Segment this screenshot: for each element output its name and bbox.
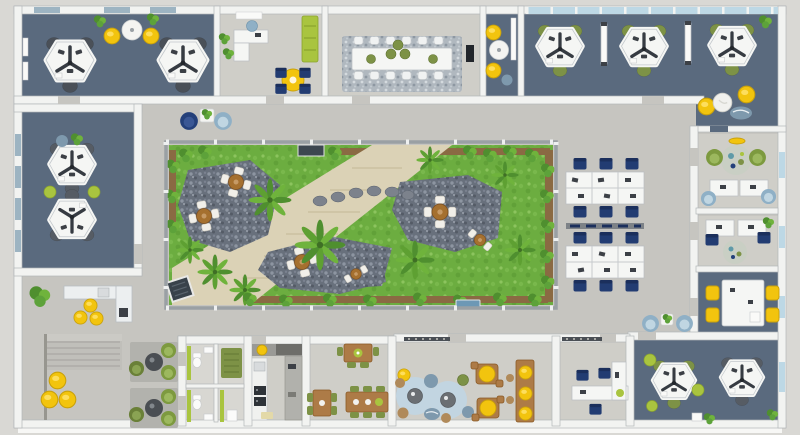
oven bbox=[254, 397, 266, 406]
navy-chair bbox=[576, 370, 588, 381]
sink bbox=[98, 288, 109, 297]
lime-pouf bbox=[44, 186, 56, 198]
yellow-stool bbox=[74, 311, 87, 324]
divider-screen bbox=[685, 23, 691, 63]
lounge-rug-2 bbox=[129, 388, 178, 428]
lime-pouf bbox=[644, 354, 656, 366]
building-bottom-face bbox=[18, 428, 782, 433]
yellow-bean-bag bbox=[59, 391, 76, 408]
plant bbox=[616, 389, 624, 397]
shelf bbox=[511, 18, 516, 60]
conference-room bbox=[342, 36, 474, 92]
yellow-lounge-chair bbox=[143, 28, 159, 44]
blue-armchair bbox=[676, 315, 693, 332]
navy-chair bbox=[589, 404, 601, 415]
blue-chair bbox=[761, 189, 776, 204]
fruit-bowl bbox=[257, 345, 267, 355]
navy-chair bbox=[275, 68, 286, 78]
lime-pouf bbox=[88, 186, 100, 198]
yellow-bean-bag bbox=[41, 391, 58, 408]
green-accent-wall bbox=[220, 390, 224, 422]
yellow-chair bbox=[766, 308, 779, 322]
window-band-top-right bbox=[526, 7, 778, 14]
olive-chair bbox=[161, 365, 176, 380]
sink bbox=[254, 362, 265, 371]
olive-chair bbox=[161, 411, 176, 426]
yellow-chair bbox=[766, 286, 779, 300]
lounge-table bbox=[441, 393, 456, 408]
blue-chair bbox=[701, 191, 716, 206]
navy-chair bbox=[299, 68, 310, 78]
navy-chair bbox=[706, 234, 719, 246]
toilet bbox=[193, 395, 201, 410]
task-chair bbox=[247, 21, 258, 32]
yellow-stool bbox=[519, 387, 532, 400]
wood-pouf bbox=[398, 408, 409, 419]
green-armchair bbox=[706, 149, 723, 166]
white-chair bbox=[354, 72, 363, 80]
bin bbox=[692, 413, 702, 421]
planter-bench bbox=[298, 145, 324, 156]
white-chair bbox=[418, 72, 427, 80]
yellow-bean-bag bbox=[738, 86, 755, 103]
monitor bbox=[255, 33, 261, 37]
coffee-machine bbox=[119, 308, 128, 317]
yellow-stool bbox=[519, 407, 532, 420]
atrium-courtyard bbox=[165, 142, 556, 308]
floor-plan-image bbox=[0, 0, 800, 435]
white-chair bbox=[434, 37, 443, 45]
yellow-bean-bag bbox=[486, 63, 501, 78]
yellow-bean-bag bbox=[486, 25, 501, 40]
radiator bbox=[23, 38, 28, 56]
sink bbox=[204, 347, 213, 353]
blue-armchair bbox=[642, 315, 659, 332]
desk-block-2 bbox=[566, 232, 644, 292]
lounge-table bbox=[408, 389, 423, 404]
floor-mat bbox=[261, 412, 273, 419]
radiator bbox=[23, 62, 28, 80]
yellow-bean-bag bbox=[698, 98, 715, 115]
white-chair bbox=[354, 37, 363, 45]
yellow-lounge-chair bbox=[104, 28, 120, 44]
white-chair bbox=[402, 72, 411, 80]
team-office-left bbox=[44, 133, 100, 241]
round-rug bbox=[721, 145, 751, 175]
yellow-stool bbox=[84, 299, 97, 312]
round-rug bbox=[723, 240, 747, 264]
l-desk bbox=[234, 30, 268, 43]
blue-armchair bbox=[214, 112, 232, 130]
white-chair bbox=[370, 72, 379, 80]
divider-screen bbox=[601, 24, 607, 64]
wall-tv bbox=[466, 45, 474, 62]
open-plan-desk-rows bbox=[566, 158, 644, 292]
olive-chair bbox=[129, 407, 144, 422]
lime-bench bbox=[302, 16, 318, 62]
olive-pouf bbox=[458, 375, 469, 386]
yellow-stool bbox=[519, 366, 532, 379]
toilet bbox=[193, 353, 201, 368]
l-desk-return bbox=[234, 43, 249, 61]
lounge-rug-1 bbox=[129, 342, 178, 382]
navy-armchair bbox=[180, 112, 198, 130]
dining-table-3 bbox=[346, 386, 388, 418]
green-accent-wall bbox=[187, 390, 191, 422]
wood-pouf bbox=[441, 413, 451, 423]
navy-chair bbox=[758, 232, 771, 244]
tiled-worktop bbox=[276, 344, 302, 355]
olive-chair bbox=[161, 389, 176, 404]
green-armchair bbox=[749, 149, 766, 166]
blue-pouf bbox=[502, 75, 513, 86]
olive-chair bbox=[161, 343, 176, 358]
white-chair bbox=[402, 37, 411, 45]
fixture bbox=[227, 410, 237, 421]
navy-chair bbox=[598, 368, 610, 379]
blue-pouf bbox=[56, 135, 68, 147]
wall-light bbox=[729, 138, 745, 144]
white-chair bbox=[370, 37, 379, 45]
floor-plan-canvas bbox=[0, 0, 800, 435]
sink bbox=[204, 414, 213, 420]
white-chair bbox=[418, 37, 427, 45]
white-chair bbox=[386, 72, 395, 80]
wood-stool bbox=[506, 374, 514, 382]
yellow-stool bbox=[90, 312, 103, 325]
yellow-bean-bag bbox=[49, 372, 66, 389]
cabinet bbox=[236, 12, 262, 19]
lime-pouf bbox=[647, 401, 658, 412]
navy-chair bbox=[299, 84, 310, 94]
desk-block-1 bbox=[566, 158, 644, 218]
white-bean-bag bbox=[713, 93, 732, 112]
green-accent-wall bbox=[187, 346, 191, 380]
yellow-chair bbox=[706, 286, 719, 300]
yellow-chair bbox=[706, 308, 719, 322]
olive-chair bbox=[129, 361, 144, 376]
lime-pouf bbox=[692, 384, 704, 396]
blue-pouf bbox=[424, 374, 438, 388]
wood-pouf bbox=[395, 378, 405, 388]
white-chair bbox=[434, 72, 443, 80]
green-mat bbox=[221, 348, 242, 378]
navy-chair bbox=[275, 84, 286, 94]
wood-stool bbox=[506, 396, 514, 404]
oven bbox=[254, 386, 266, 395]
